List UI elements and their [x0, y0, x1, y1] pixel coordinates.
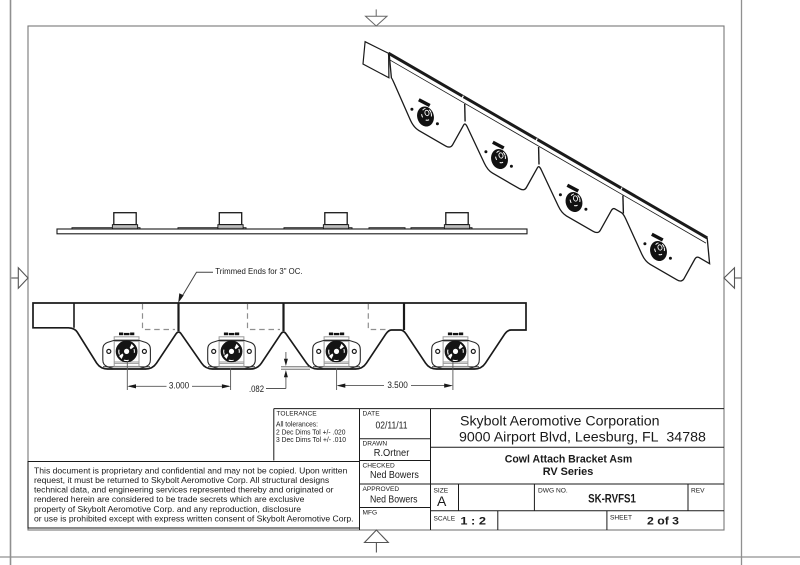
svg-text:DWG NO.: DWG NO. — [538, 488, 568, 495]
svg-text:A: A — [437, 493, 447, 509]
svg-text:Ned Bowers: Ned Bowers — [370, 470, 419, 481]
svg-text:DATE: DATE — [363, 411, 381, 418]
svg-text:Trimmed Ends for 3" OC.: Trimmed Ends for 3" OC. — [215, 267, 302, 276]
svg-text:9000 Airport Blvd, Leesburg, F: 9000 Airport Blvd, Leesburg, FL 34788 — [459, 430, 706, 446]
svg-text:request, it must be returned t: request, it must be returned to Skybolt … — [34, 475, 329, 485]
svg-text:TOLERANCE: TOLERANCE — [277, 411, 318, 418]
svg-text:.082: .082 — [249, 383, 264, 394]
svg-text:SCALE: SCALE — [434, 516, 456, 523]
svg-text:rendered herein are considered: rendered herein are considered to be tra… — [34, 494, 305, 504]
svg-text:3 Dec Dims Tol +/- .010: 3 Dec Dims Tol +/- .010 — [276, 435, 346, 444]
svg-text:This document is proprietary a: This document is proprietary and confide… — [34, 465, 348, 475]
svg-text:DRAWN: DRAWN — [363, 441, 388, 448]
svg-text:property of Skybolt Aeromotive: property of Skybolt Aeromotive Corp. and… — [34, 504, 301, 514]
svg-text:3.500: 3.500 — [387, 379, 408, 390]
svg-text:SHEET: SHEET — [610, 515, 632, 522]
svg-text:R.Ortner: R.Ortner — [374, 448, 410, 459]
svg-text:REV: REV — [691, 488, 705, 495]
svg-text:SK-RVFS1: SK-RVFS1 — [588, 492, 636, 506]
svg-text:MFG: MFG — [363, 510, 378, 517]
svg-text:3.000: 3.000 — [169, 380, 189, 391]
svg-text:RV Series: RV Series — [543, 466, 594, 478]
svg-text:1 : 2: 1 : 2 — [460, 516, 486, 528]
svg-text:CHECKED: CHECKED — [363, 462, 395, 469]
svg-text:Ned Bowers: Ned Bowers — [370, 494, 418, 505]
svg-text:APPROVED: APPROVED — [363, 486, 400, 493]
svg-text:2 of 3: 2 of 3 — [647, 516, 679, 528]
svg-text:or use is prohibited except wi: or use is prohibited except with express… — [34, 513, 354, 523]
svg-text:Skybolt Aeromotive Corporation: Skybolt Aeromotive Corporation — [460, 414, 660, 430]
svg-text:technical data, and engineerin: technical data, and engineering services… — [34, 485, 334, 495]
svg-text:Cowl Attach Bracket Asm: Cowl Attach Bracket Asm — [505, 454, 633, 466]
svg-text:02/11/11: 02/11/11 — [376, 421, 408, 432]
